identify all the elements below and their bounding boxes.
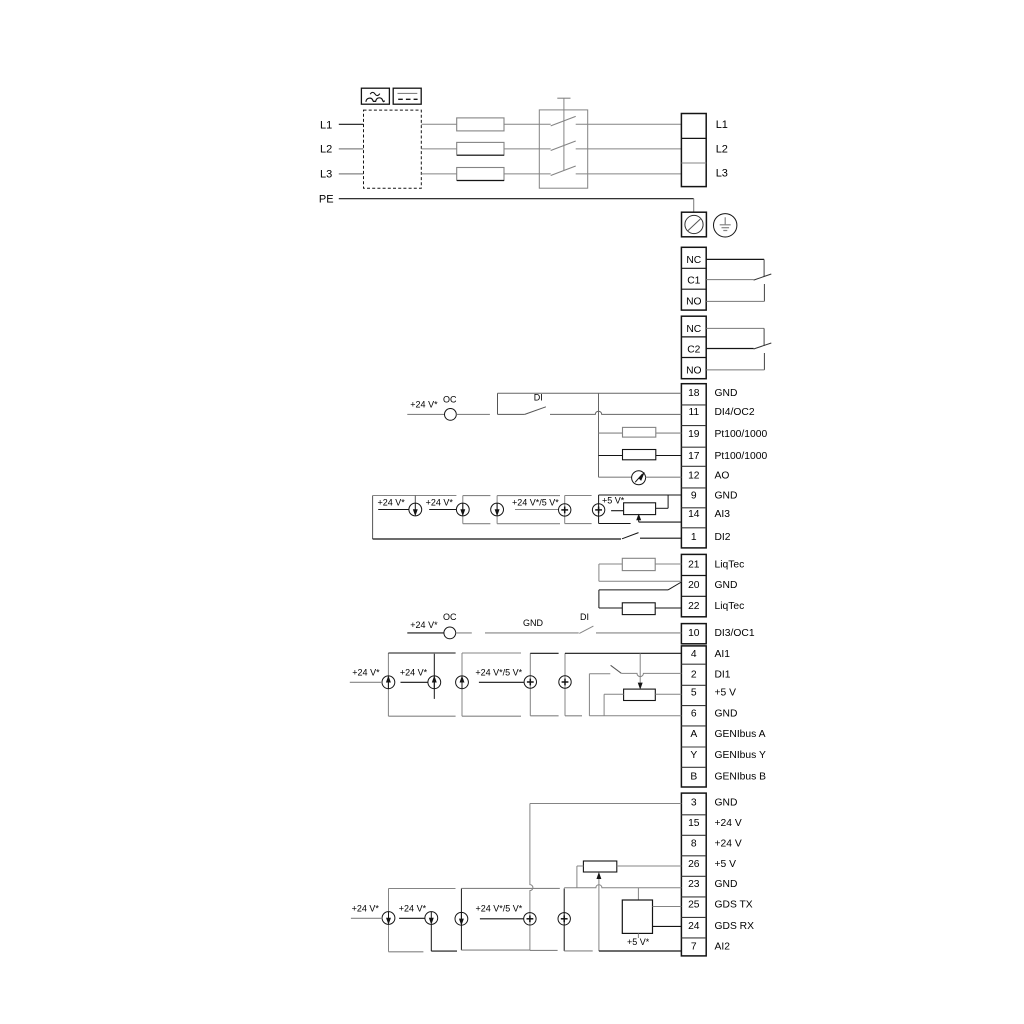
svg-text:15: 15 (688, 818, 700, 829)
svg-text:+24 V*: +24 V* (352, 667, 380, 677)
svg-text:Y: Y (690, 750, 697, 761)
svg-text:5: 5 (691, 688, 697, 699)
svg-text:+24 V*/5 V*: +24 V*/5 V* (512, 498, 559, 508)
svg-text:+5 V: +5 V (715, 688, 737, 699)
svg-text:GENIbus A: GENIbus A (715, 729, 766, 740)
svg-text:+24 V*/5 V*: +24 V*/5 V* (475, 667, 522, 677)
svg-text:1: 1 (691, 532, 697, 543)
svg-text:24: 24 (688, 921, 700, 932)
svg-text:26: 26 (688, 859, 700, 870)
svg-text:10: 10 (688, 628, 700, 639)
svg-text:B: B (690, 771, 697, 782)
svg-text:OC: OC (443, 394, 457, 404)
svg-text:11: 11 (688, 407, 699, 418)
svg-text:18: 18 (688, 388, 700, 399)
svg-text:21: 21 (688, 560, 700, 571)
svg-text:DI3/OC1: DI3/OC1 (715, 628, 755, 639)
svg-text:L1: L1 (320, 119, 332, 131)
svg-text:DI: DI (580, 612, 589, 622)
svg-text:20: 20 (688, 580, 700, 591)
svg-text:+24 V*/5 V*: +24 V*/5 V* (476, 903, 523, 913)
svg-text:4: 4 (691, 649, 697, 660)
svg-text:+24 V*: +24 V* (426, 498, 454, 508)
svg-text:GENIbus Y: GENIbus Y (715, 750, 766, 761)
svg-text:2: 2 (691, 670, 697, 681)
svg-text:GND: GND (715, 879, 738, 890)
svg-text:LiqTec: LiqTec (715, 560, 745, 571)
svg-text:L3: L3 (716, 167, 728, 179)
svg-text:A: A (690, 729, 697, 740)
svg-text:+24 V*: +24 V* (352, 903, 380, 913)
svg-text:DI2: DI2 (715, 532, 731, 543)
svg-text:AI1: AI1 (715, 649, 731, 660)
svg-text:GND: GND (715, 491, 738, 502)
svg-text:NO: NO (686, 366, 701, 377)
svg-text:9: 9 (691, 491, 697, 502)
svg-text:3: 3 (691, 797, 697, 808)
svg-text:+5 V*: +5 V* (602, 495, 625, 505)
svg-text:GND: GND (715, 580, 738, 591)
svg-text:GDS RX: GDS RX (715, 921, 755, 932)
svg-text:17: 17 (688, 451, 700, 462)
svg-text:OC: OC (443, 612, 457, 622)
svg-text:C1: C1 (687, 276, 700, 287)
svg-text:AI3: AI3 (715, 509, 731, 520)
svg-text:DI: DI (534, 393, 543, 403)
svg-text:L2: L2 (320, 144, 332, 156)
svg-text:+24 V: +24 V (715, 818, 742, 829)
svg-text:+24 V*: +24 V* (399, 903, 427, 913)
svg-text:LiqTec: LiqTec (715, 601, 745, 612)
svg-text:8: 8 (691, 839, 697, 850)
svg-text:AO: AO (715, 471, 730, 482)
svg-text:GND: GND (715, 708, 738, 719)
svg-text:AI2: AI2 (715, 941, 731, 952)
svg-text:C2: C2 (687, 344, 700, 355)
svg-text:DI4/OC2: DI4/OC2 (715, 407, 755, 418)
svg-text:Pt100/1000: Pt100/1000 (715, 429, 768, 440)
svg-text:L1: L1 (716, 119, 728, 131)
svg-text:Pt100/1000: Pt100/1000 (715, 451, 768, 462)
svg-text:GND: GND (523, 618, 544, 628)
svg-text:PE: PE (319, 194, 334, 206)
svg-text:GND: GND (715, 388, 738, 399)
svg-text:25: 25 (688, 899, 700, 910)
svg-text:NC: NC (686, 255, 701, 266)
svg-text:+24 V*: +24 V* (410, 400, 438, 410)
svg-text:+5 V*: +5 V* (627, 937, 650, 947)
svg-text:6: 6 (691, 708, 697, 719)
svg-text:NO: NO (686, 297, 701, 308)
svg-text:GENIbus B: GENIbus B (715, 771, 767, 782)
svg-text:7: 7 (691, 941, 697, 952)
svg-text:+5 V: +5 V (715, 859, 737, 870)
svg-text:12: 12 (688, 471, 700, 482)
svg-text:L3: L3 (320, 169, 332, 181)
svg-text:19: 19 (688, 429, 700, 440)
svg-text:+24 V*: +24 V* (410, 620, 438, 630)
svg-text:DI1: DI1 (715, 670, 731, 681)
svg-text:+24 V: +24 V (715, 839, 742, 850)
svg-text:23: 23 (688, 879, 700, 890)
svg-text:22: 22 (688, 601, 700, 612)
svg-text:GND: GND (715, 797, 738, 808)
svg-text:+24 V*: +24 V* (400, 667, 428, 677)
svg-text:L2: L2 (716, 144, 728, 156)
svg-text:NC: NC (686, 324, 701, 335)
svg-text:GDS TX: GDS TX (715, 899, 753, 910)
svg-text:14: 14 (688, 509, 700, 520)
svg-text:+24 V*: +24 V* (378, 498, 406, 508)
